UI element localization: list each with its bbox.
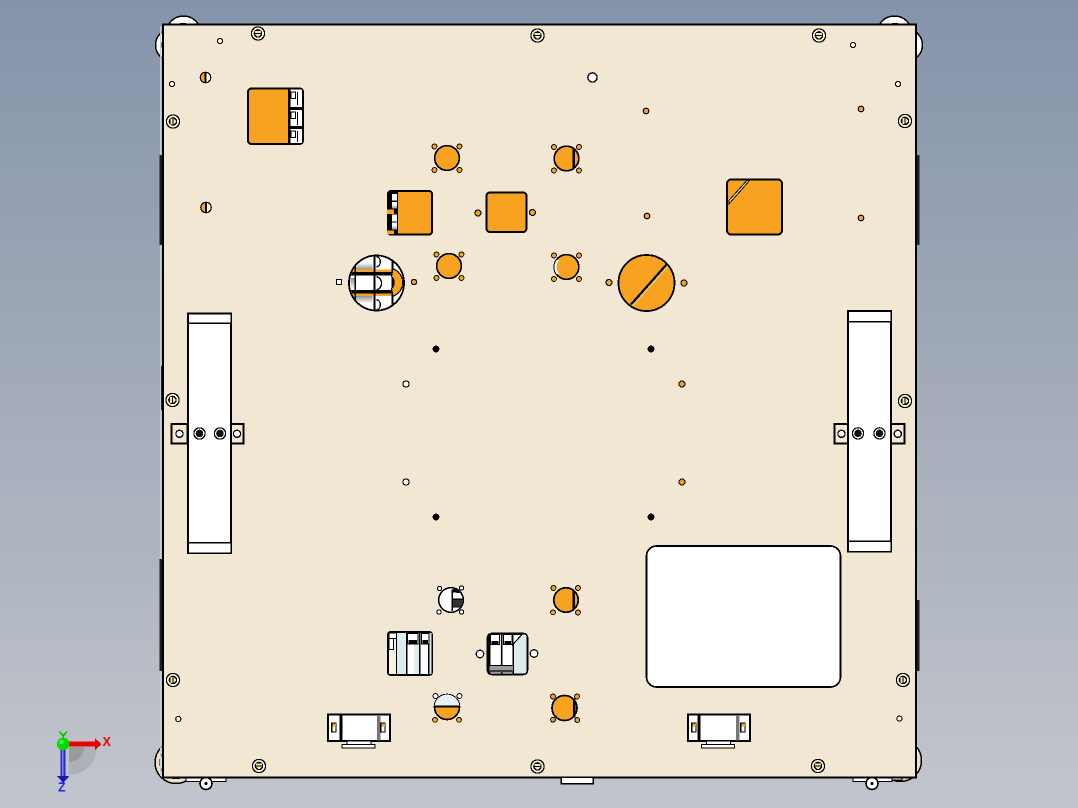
svg-text:Z: Z [58,781,66,795]
svg-text:X: X [103,735,112,749]
